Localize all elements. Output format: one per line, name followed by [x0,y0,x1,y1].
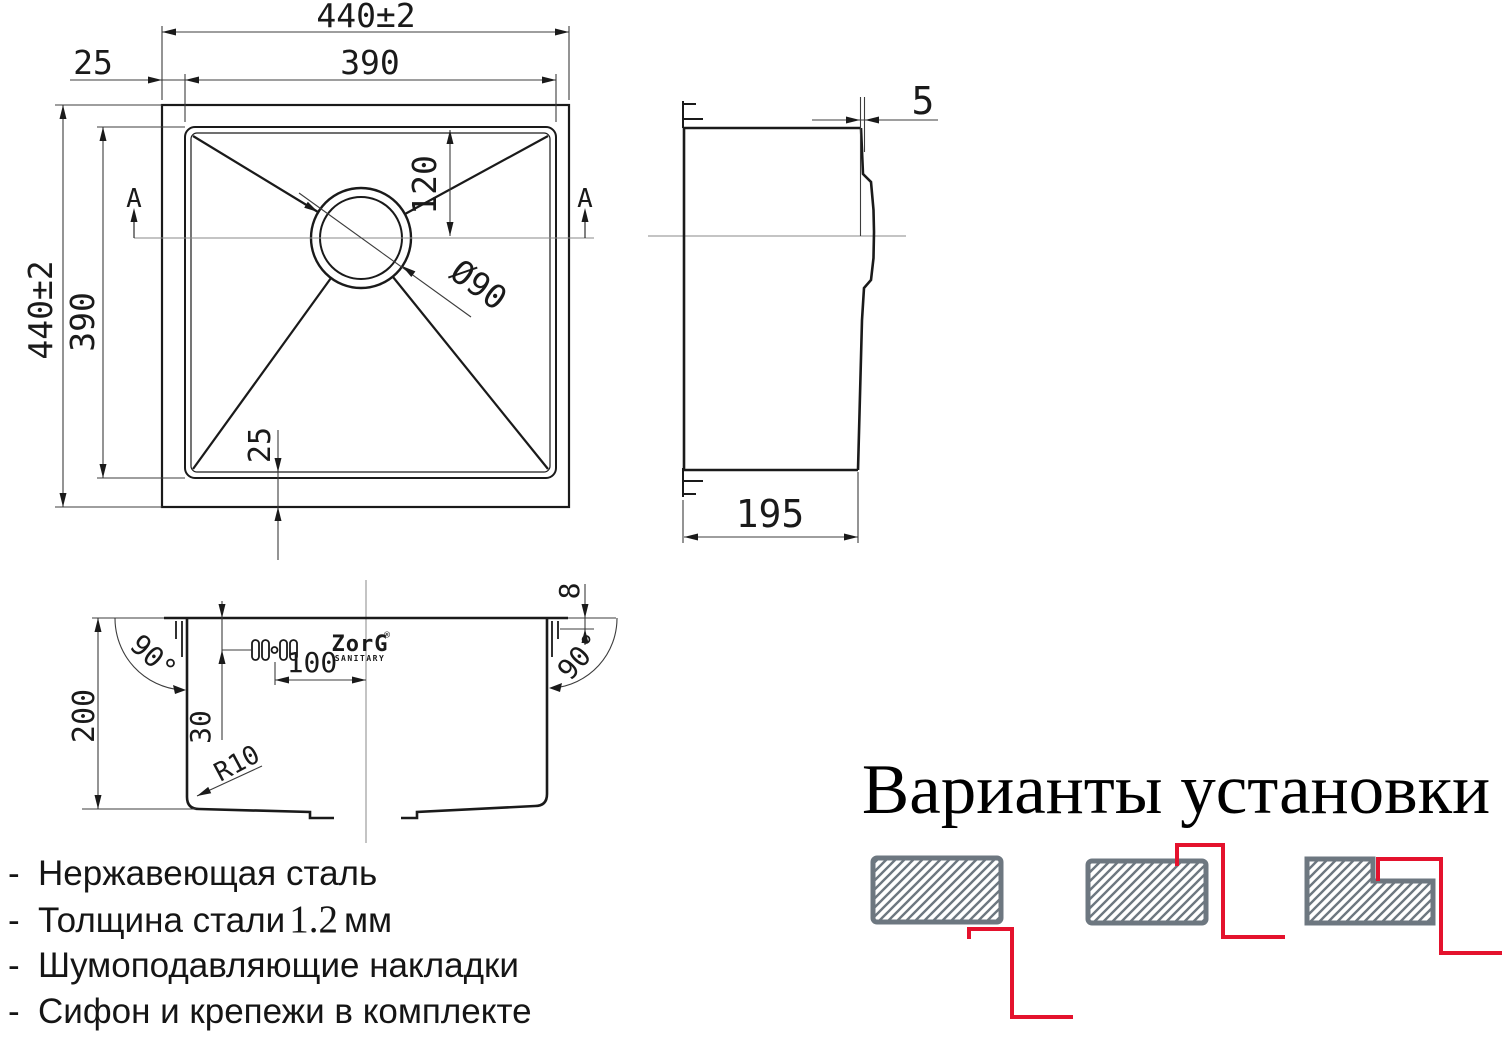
feature-text: Сифон и крепежи в комплекте [38,992,532,1031]
sink-technical-drawing: 440±2 390 25 440±2 390 120 Ø90 25 A A [0,0,1502,1037]
bullet: - [8,989,38,1035]
section-view: 200 30 100 R10 8 90° 90° ZorG ® SANITARY [67,580,617,843]
feature-item: -Толщина стали1.2мм [8,897,648,944]
dim-outer-width: 440±2 [316,0,415,35]
feature-text: Шумоподавляющие накладки [38,946,519,985]
install-variants [873,845,1502,1017]
countertop-block [873,858,1001,922]
bullet: - [8,943,38,989]
thickness-value: 1.2 [289,898,338,941]
dim-rim-offset: 25 [73,43,113,82]
dim-outer-height: 440±2 [21,260,60,359]
install-options-title: Варианты установки [852,750,1500,831]
section-marker-left: A [126,184,142,214]
feature-item: -Нержавеющая сталь [8,851,648,897]
registered-icon: ® [384,630,391,641]
dim-rim-lip: 8 [553,583,586,600]
thickness-unit: мм [344,901,392,940]
section-right-wall [401,618,547,818]
section-marker-right: A [577,184,593,214]
dim-inner-width: 390 [340,43,400,82]
bullet: - [8,898,38,944]
feature-item: -Сифон и крепежи в комплекте [8,989,648,1035]
dim-overflow-from-rim: 30 [184,710,217,744]
variant-undermount [873,858,1073,1017]
feature-text: Толщина стали [38,901,285,940]
feature-text: Нержавеющая сталь [38,854,377,893]
dim-bottom-radius: R10 [209,740,265,789]
outer-rim-outline [162,105,569,507]
brand-subtitle: SANITARY [335,654,386,663]
dim-depth: 195 [736,492,805,536]
variant-flush [1307,859,1502,953]
dim-bottom-offset: 25 [243,427,278,463]
brand-logo: ZorG ® SANITARY [332,630,391,663]
angle-right: 90° [551,627,609,687]
variant-overmount [1088,845,1285,937]
countertop-block [1088,861,1206,923]
bullet: - [8,851,38,897]
dim-rim-thickness: 5 [912,79,935,123]
feature-list: -Нержавеющая сталь -Толщина стали1.2мм -… [8,851,648,1034]
top-view: 440±2 390 25 440±2 390 120 Ø90 25 A A [21,0,594,560]
countertop-block [1307,859,1433,923]
feature-item: -Шумоподавляющие накладки [8,943,648,989]
dim-drain-from-top: 120 [405,155,444,215]
angle-left: 90° [124,628,184,686]
dim-overflow-to-center: 100 [287,646,338,679]
dim-drain-diameter: Ø90 [443,251,514,318]
dim-bowl-depth: 200 [67,689,102,743]
side-view: 5 195 [648,79,938,543]
sink-rim-line [969,929,1073,1017]
dim-inner-height: 390 [63,292,102,352]
